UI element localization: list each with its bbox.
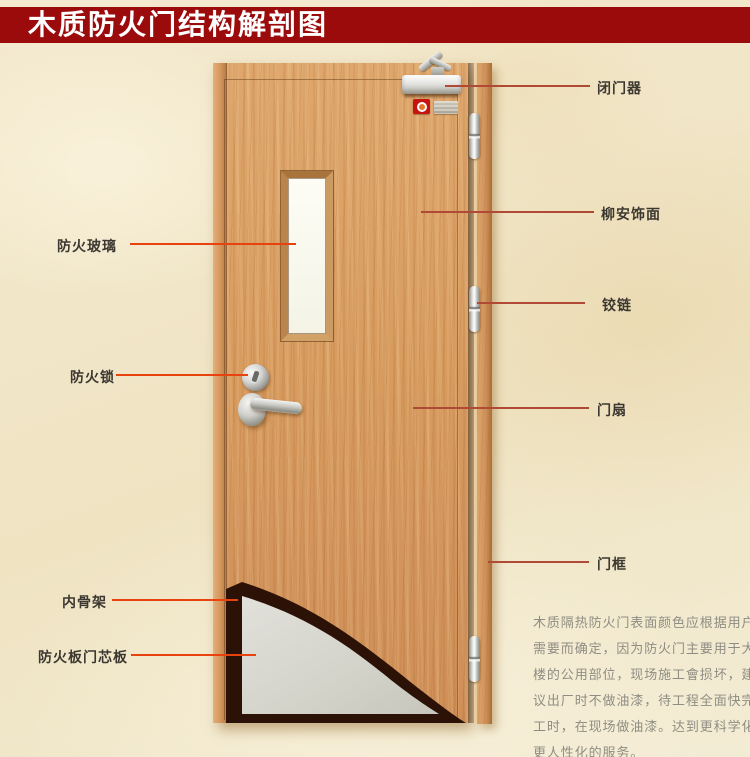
cutaway-core-board (242, 596, 439, 714)
label-fire-lock: 防火锁 (70, 367, 115, 387)
door-closer-shadow (405, 94, 458, 99)
leader-line-door-frame (488, 561, 589, 563)
label-door-frame: 门框 (597, 554, 627, 574)
description-line: 工时，在现场做油漆。达到更科学化 (533, 714, 749, 740)
page-title: 木质防火门结构解剖图 (28, 7, 328, 43)
description-line: 更人性化的服务。 (533, 740, 749, 757)
page: 木质防火门结构解剖图 防 (0, 0, 750, 757)
leader-line-hinge (477, 302, 585, 304)
label-inner-skeleton: 内骨架 (62, 592, 107, 612)
description-line: 木质隔热防火门表面颜色应根据用户 (533, 610, 749, 636)
door-frame (477, 63, 492, 724)
label-fire-board-core: 防火板门芯板 (38, 647, 128, 667)
certification-label (434, 101, 458, 114)
hinge-middle (469, 286, 480, 332)
description-line: 需要而确定，因为防火门主要用于大 (533, 636, 749, 662)
label-door-closer: 闭门器 (597, 78, 642, 98)
bottom-cutaway (213, 570, 471, 725)
leader-line-fire-board-core (131, 654, 256, 656)
leader-line-fire-glass (130, 243, 296, 245)
fire-rating-badge-emblem (417, 102, 427, 112)
title-banner: 木质防火门结构解剖图 (0, 7, 750, 43)
fire-rating-badge (413, 99, 430, 114)
label-door-leaf: 门扇 (597, 400, 627, 420)
leader-line-door-closer (445, 85, 590, 87)
leader-line-lauan-veneer (421, 211, 594, 213)
label-fire-glass: 防火玻璃 (57, 236, 117, 256)
hinge-top (469, 113, 480, 159)
description-line: 楼的公用部位，现场施工會损坏，建 (533, 662, 749, 688)
leader-line-fire-lock (116, 374, 248, 376)
label-lauan-veneer: 柳安饰面 (601, 204, 661, 224)
hinge-bottom (469, 636, 480, 682)
leader-line-door-leaf (413, 407, 589, 409)
description-text: 木质隔热防火门表面颜色应根据用户 需要而确定，因为防火门主要用于大 楼的公用部位… (533, 610, 749, 757)
leader-line-inner-skeleton (112, 599, 238, 601)
label-hinge: 铰链 (602, 295, 632, 315)
glass-window (281, 171, 333, 341)
description-line: 议出厂时不做油漆，待工程全面快完 (533, 688, 749, 714)
